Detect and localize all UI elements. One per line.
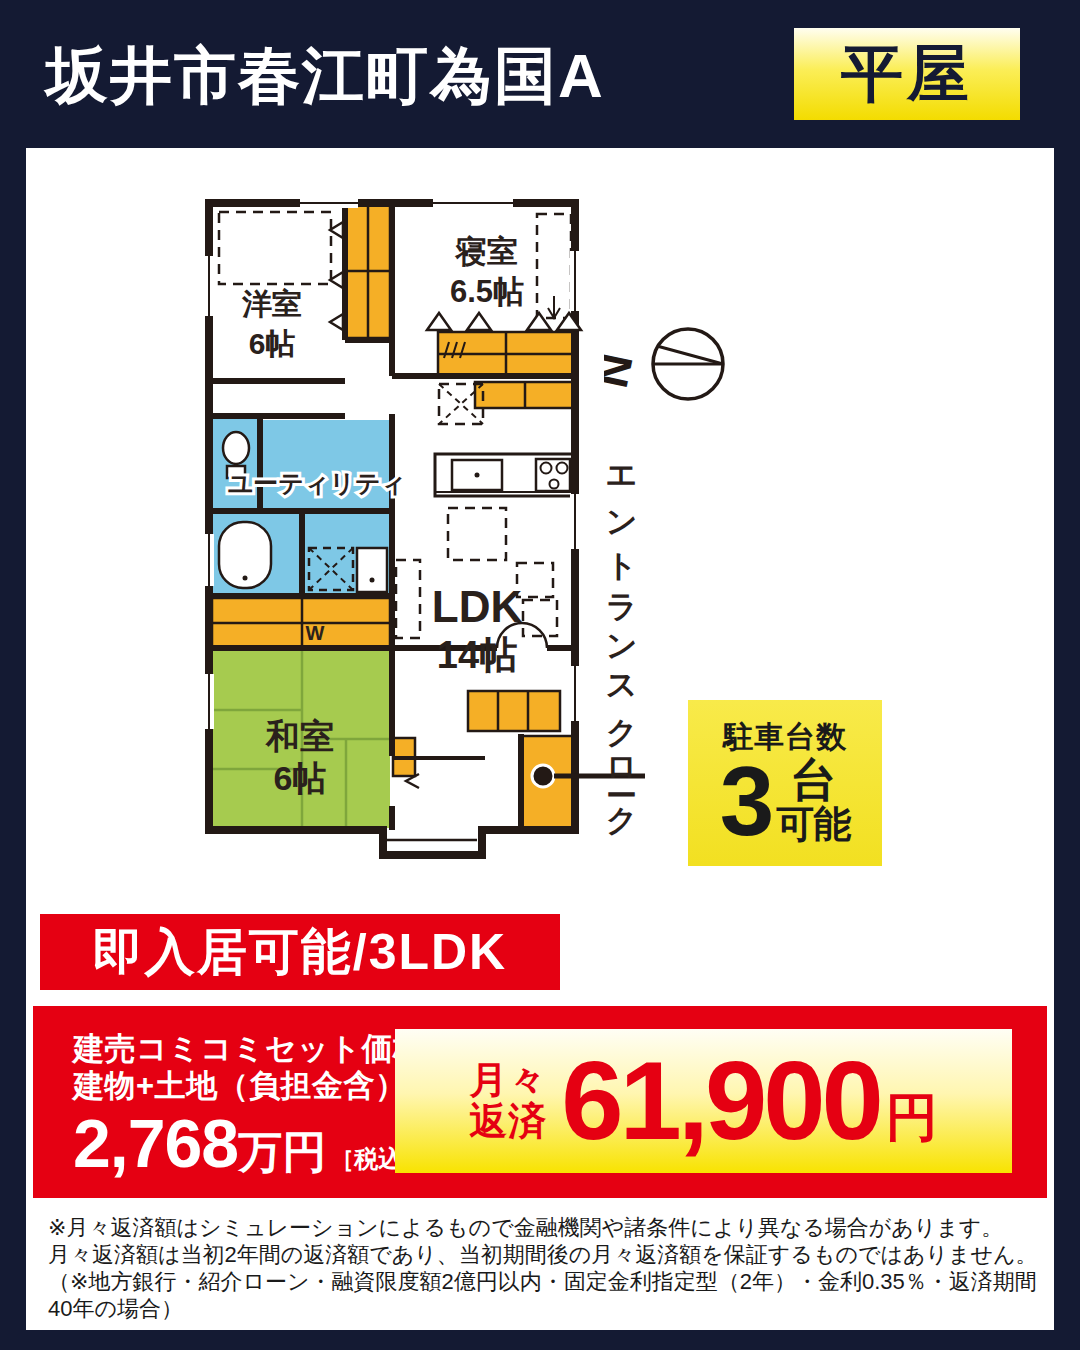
bathtub-icon [219, 522, 271, 588]
price-panel: 建売コミコミセット価格 建物+土地（負担金含） 2,768 万円 ［税込］ 月々… [33, 1006, 1047, 1198]
floor-plan: 洋室 6帖 寝室 6.5帖 ユーティリティ LDK 14帖 和室 6帖 W [205, 196, 645, 868]
ldk-size: 14帖 [437, 634, 517, 676]
monthly-label-line2: 返済 [469, 1101, 547, 1142]
single-story-badge: 平屋 [794, 28, 1020, 120]
western-room-label: 洋室 [241, 287, 302, 320]
parking-row: 3 台 可能 [720, 752, 851, 850]
page-title: 坂井市春江町為国A [46, 34, 605, 118]
monthly-label: 月々 返済 [469, 1060, 547, 1142]
move-in-ribbon: 即入居可能/3LDK [40, 914, 560, 990]
content-card: 洋室 6帖 寝室 6.5帖 ユーティリティ LDK 14帖 和室 6帖 W N … [26, 148, 1054, 1330]
disclaimer-line3: （※地方銀行・紹介ローン・融資限度額2億円以内・固定金利指定型（2年）・金利0.… [48, 1268, 1054, 1322]
monthly-unit: 円 [886, 1083, 938, 1153]
disclaimer: ※月々返済額はシミュレーションによるもので金融機関や諸条件により異なる場合があり… [48, 1214, 1054, 1322]
parking-suffix: 可能 [776, 805, 850, 845]
utility-label: ユーティリティ [228, 469, 407, 497]
north-icon: N [604, 349, 643, 392]
leader-dot [532, 765, 554, 787]
set-price-number: 2,768 [73, 1108, 238, 1179]
ldk-label: LDK [432, 582, 523, 631]
parking-count: 3 [720, 752, 773, 850]
closet-w-mark: W [306, 622, 325, 644]
entrance-cloak-label: エントランスクローク [598, 448, 642, 858]
parking-unit-col: 台 可能 [776, 756, 850, 844]
japanese-room-label: 和室 [265, 717, 334, 755]
bedroom-label: 寝室 [454, 234, 518, 269]
monthly-payment-box: 月々 返済 61,900 円 [395, 1029, 1012, 1173]
monthly-amount: 61,900 [561, 1045, 880, 1157]
disclaimer-line2: 月々返済額は当初2年間の返済額であり、当初期間後の月々返済額を保証するものではあ… [48, 1241, 1054, 1268]
disclaimer-line1: ※月々返済額はシミュレーションによるもので金融機関や諸条件により異なる場合があり… [48, 1214, 1054, 1241]
compass: N [604, 320, 734, 408]
kitchen-counter [435, 454, 575, 496]
parking-unit: 台 [790, 756, 836, 804]
set-price-line2: 建物+土地（負担金含） [73, 1067, 426, 1104]
monthly-label-line1: 月々 [469, 1060, 547, 1101]
bedroom-size: 6.5帖 [450, 274, 524, 309]
set-price-row: 2,768 万円 ［税込］ [73, 1108, 426, 1182]
closet-arrow [548, 296, 560, 318]
flyer-root: { "header": { "title": "坂井市春江町為国A", "bad… [0, 0, 1080, 1350]
japanese-room-size: 6帖 [274, 759, 327, 797]
set-price-line1: 建売コミコミセット価格 [73, 1030, 426, 1067]
set-price-block: 建売コミコミセット価格 建物+土地（負担金含） 2,768 万円 ［税込］ [73, 1030, 426, 1182]
set-price-unit: 万円 [238, 1123, 326, 1182]
sink-icon [357, 548, 387, 592]
parking-badge: 駐車台数 3 台 可能 [688, 700, 882, 866]
western-room-size: 6帖 [249, 327, 296, 360]
